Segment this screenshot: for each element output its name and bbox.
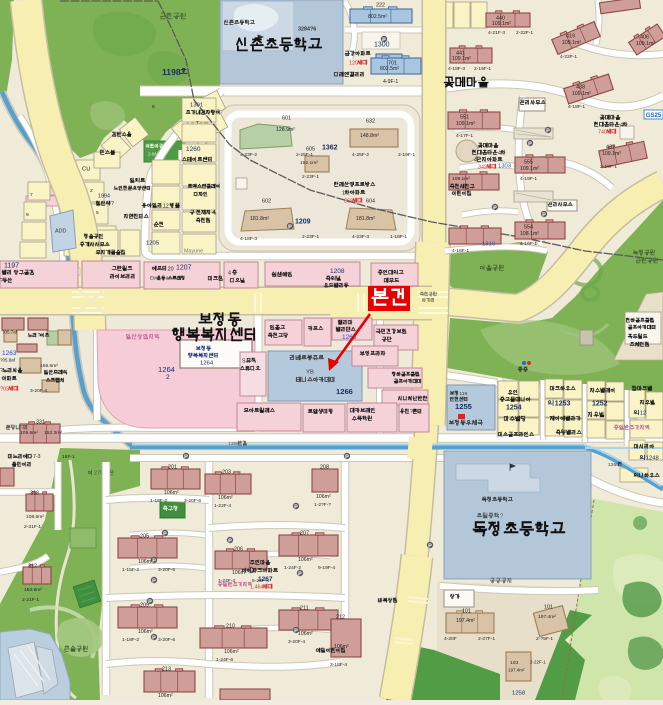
svg-text:?: ? <box>0 278 3 284</box>
svg-text:7: 7 <box>30 192 33 198</box>
svg-text:1-2?F-?: 1-2?F-? <box>314 502 331 508</box>
svg-text:2-21F-1: 2-21F-1 <box>22 597 39 603</box>
svg-text:406: 406 <box>640 34 649 40</box>
svg-text:120: 120 <box>349 60 358 66</box>
svg-text:108.1m²: 108.1m² <box>452 176 470 182</box>
svg-text:181.8m²: 181.8m² <box>250 216 269 222</box>
svg-text:Mayune: Mayune <box>184 248 203 254</box>
svg-text:P: P <box>542 212 546 218</box>
svg-text:109.1m²: 109.1m² <box>452 56 471 62</box>
svg-text:4-18F-3: 4-18F-3 <box>240 236 257 242</box>
svg-text:318: 318 <box>30 490 39 496</box>
svg-text:ADD: ADD <box>55 228 66 234</box>
svg-text:3-20F-6: 3-20F-6 <box>158 567 175 573</box>
svg-text:12: 12 <box>163 203 169 209</box>
svg-text:2: 2 <box>90 188 93 194</box>
svg-text:2-19F-1: 2-19F-1 <box>474 66 491 72</box>
svg-text:109.1m²: 109.1m² <box>636 41 655 47</box>
svg-text:?: ? <box>410 409 413 415</box>
svg-text:1-18F-2: 1-18F-2 <box>150 498 167 504</box>
svg-text:197.4m²: 197.4m² <box>456 618 475 624</box>
svg-text:1255: 1255 <box>455 402 473 411</box>
svg-text:1248: 1248 <box>646 456 660 462</box>
svg-text:438: 438 <box>576 84 585 90</box>
svg-text:554: 554 <box>524 224 533 230</box>
svg-text:109.6m²: 109.6m² <box>20 430 38 436</box>
svg-text:4-17F-1: 4-17F-1 <box>456 133 473 139</box>
svg-text:209: 209 <box>140 602 149 608</box>
svg-text:342: 342 <box>478 164 487 170</box>
svg-text:4-18F-3: 4-18F-3 <box>448 66 465 72</box>
svg-text:213: 213 <box>162 666 171 672</box>
svg-text:2-23F-1: 2-23F-1 <box>302 234 319 240</box>
svg-text:3-20F-6: 3-20F-6 <box>158 637 175 643</box>
svg-text:6: 6 <box>152 104 155 110</box>
svg-text:106m²: 106m² <box>164 490 179 496</box>
svg-text:&: & <box>166 276 169 281</box>
svg-text:210: 210 <box>226 623 235 629</box>
svg-text:1-22F-4: 1-22F-4 <box>214 503 231 509</box>
svg-text:604: 604 <box>366 198 375 204</box>
svg-text:4-19F-1: 4-19F-1 <box>520 176 537 182</box>
svg-text:12: 12 <box>640 411 647 417</box>
svg-text:206: 206 <box>234 546 243 552</box>
svg-text:106m²: 106m² <box>298 631 313 637</box>
svg-text:197.4m²: 197.4m² <box>508 668 525 673</box>
svg-text:?05.7af: ?05.7af <box>2 330 18 335</box>
svg-text:2-22F-1: 2-22F-1 <box>530 660 546 665</box>
svg-text:4: 4 <box>498 150 501 156</box>
svg-text:CU: CU <box>82 167 91 173</box>
svg-text:155.6m²: 155.6m² <box>40 363 58 369</box>
svg-text:4: 4 <box>228 270 231 276</box>
svg-text:P: P <box>528 141 532 147</box>
svg-text:152.8m²: 152.8m² <box>24 587 42 593</box>
svg-text:181.8m²: 181.8m² <box>356 216 375 222</box>
svg-text:1263: 1263 <box>2 350 17 357</box>
svg-text:7: 7 <box>196 120 199 126</box>
svg-text:555: 555 <box>524 159 533 165</box>
svg-text:1253: 1253 <box>555 401 571 408</box>
svg-text:?05.8af: ?05.8af <box>0 358 16 363</box>
svg-text:9: 9 <box>26 212 29 218</box>
svg-text:109.1m²: 109.1m² <box>456 121 475 127</box>
svg-text:5: 5 <box>96 210 99 216</box>
svg-text:4: 4 <box>620 122 623 128</box>
svg-text:1254: 1254 <box>506 405 522 412</box>
svg-text:211: 211 <box>300 605 309 611</box>
svg-text:1-24F-6: 1-24F-6 <box>216 657 233 663</box>
svg-text:601: 601 <box>282 115 291 121</box>
svg-text:106m²: 106m² <box>316 494 331 500</box>
svg-text:P: P <box>152 558 156 564</box>
svg-text:P: P <box>228 538 232 544</box>
svg-text:1362: 1362 <box>322 145 338 152</box>
svg-text:551: 551 <box>460 114 469 120</box>
svg-text:P: P <box>163 531 167 537</box>
svg-text:201: 201 <box>168 464 177 470</box>
svg-text:208: 208 <box>320 464 329 470</box>
svg-text:P: P <box>428 543 432 549</box>
svg-text:605: 605 <box>306 146 315 152</box>
svg-text:1252: 1252 <box>592 401 608 408</box>
svg-text:P: P <box>288 224 292 230</box>
svg-text:103: 103 <box>510 660 518 666</box>
svg-text:106m²: 106m² <box>224 649 239 655</box>
svg-text:P: P <box>184 454 188 460</box>
svg-text:P: P <box>152 578 156 584</box>
svg-text:1310: 1310 <box>482 242 496 248</box>
svg-text:20: 20 <box>168 266 174 272</box>
svg-text:437: 437 <box>606 144 615 150</box>
svg-text:4-21F-3: 4-21F-3 <box>488 30 505 36</box>
svg-text:106m²: 106m² <box>138 629 153 635</box>
svg-text:108.6m²: 108.6m² <box>26 514 44 520</box>
svg-text:2-23F-1: 2-23F-1 <box>302 174 319 180</box>
svg-text:602: 602 <box>262 198 271 204</box>
svg-text:1268: 1268 <box>608 462 619 468</box>
svg-text:1266: 1266 <box>336 387 353 396</box>
svg-text:16F-1: 16F-1 <box>62 454 75 460</box>
svg-text:109.1m²: 109.1m² <box>520 166 539 172</box>
svg-text:1-15F-2: 1-15F-2 <box>122 567 139 573</box>
svg-text:4-25F-2: 4-25F-2 <box>352 152 369 158</box>
svg-text:?: ? <box>38 333 41 339</box>
svg-text:1264: 1264 <box>200 361 214 367</box>
svg-text:802.5m²: 802.5m² <box>380 66 399 72</box>
svg-text:2-27F-1: 2-27F-1 <box>478 636 495 642</box>
svg-text:1300: 1300 <box>374 42 390 49</box>
svg-text:148.8m²: 148.8m² <box>360 133 379 139</box>
svg-text:1994: 1994 <box>98 193 110 199</box>
svg-text:109.1m²: 109.1m² <box>572 91 591 97</box>
svg-text:4-20F: 4-20F <box>444 636 457 642</box>
svg-text:4-18F-1: 4-18F-1 <box>568 104 585 110</box>
svg-text:P: P <box>493 205 497 211</box>
svg-text:109.1m²: 109.1m² <box>492 21 511 27</box>
svg-text:197.4m²: 197.4m² <box>538 614 556 620</box>
svg-text:109.1m²: 109.1m² <box>602 151 621 157</box>
svg-text:331: 331 <box>36 419 45 425</box>
svg-text:P: P <box>294 504 298 510</box>
svg-text:4-23F-3: 4-23F-3 <box>352 234 369 240</box>
svg-text:P: P <box>152 635 156 641</box>
svg-text:4-16F-1: 4-16F-1 <box>452 248 469 254</box>
svg-text:2-22F-1: 2-22F-1 <box>516 30 533 36</box>
svg-text:101: 101 <box>544 604 553 610</box>
svg-text:1-18F-1: 1-18F-1 <box>390 234 407 240</box>
svg-text:1198: 1198 <box>162 67 181 77</box>
svg-text:2: 2 <box>166 374 170 381</box>
svg-text:3-20F-4: 3-20F-4 <box>288 639 305 645</box>
svg-text:9-19F-4: 9-19F-4 <box>318 565 335 571</box>
svg-text:P: P <box>345 454 349 460</box>
svg-text:YB: YB <box>306 370 314 376</box>
svg-text:419: 419 <box>566 33 575 39</box>
svg-text:7-3: 7-3 <box>33 454 41 460</box>
svg-text:207: 207 <box>300 530 309 536</box>
svg-text:205: 205 <box>140 533 149 539</box>
svg-text:1-18F-2: 1-18F-2 <box>122 637 139 643</box>
svg-text:GS25: GS25 <box>646 113 662 119</box>
svg-text:740: 740 <box>598 129 607 135</box>
svg-text:P: P <box>298 571 302 577</box>
svg-text:2-?5F-1: 2-?5F-1 <box>536 636 553 642</box>
svg-text:119: 119 <box>459 391 467 397</box>
svg-text:4-16F-1: 4-16F-1 <box>520 241 537 247</box>
svg-text:P: P <box>249 568 253 574</box>
svg-text:3-20F-4: 3-20F-4 <box>30 388 47 394</box>
svg-text:128.9m²: 128.9m² <box>276 127 295 133</box>
svg-text:3-18F-4: 3-18F-4 <box>330 662 347 668</box>
svg-text:106m²: 106m² <box>158 693 173 699</box>
svg-text:?03: ?03 <box>0 386 9 392</box>
svg-text:152.3m²: 152.3m² <box>44 430 62 436</box>
svg-text:1368: 1368 <box>228 441 239 447</box>
svg-text:1-24F-2: 1-24F-2 <box>284 565 301 571</box>
svg-text:312: 312 <box>28 563 37 569</box>
svg-text:1207: 1207 <box>176 265 192 272</box>
svg-text:222: 222 <box>376 2 385 8</box>
svg-text:632: 632 <box>366 118 375 124</box>
svg-text:106m²: 106m² <box>218 495 233 501</box>
svg-text:101: 101 <box>462 608 471 614</box>
svg-text:1264: 1264 <box>158 365 175 374</box>
svg-text:106m²: 106m² <box>232 570 247 576</box>
svg-text:1205: 1205 <box>146 241 160 247</box>
svg-text:1303: 1303 <box>498 164 512 170</box>
svg-text:2-19F-1: 2-19F-1 <box>398 152 415 158</box>
svg-text:106m²: 106m² <box>298 557 313 563</box>
svg-text:802.5m²: 802.5m² <box>368 14 387 20</box>
svg-text:203: 203 <box>222 469 231 475</box>
svg-text:1260: 1260 <box>186 146 201 153</box>
svg-text:106m²: 106m² <box>138 559 153 565</box>
svg-text:4: 4 <box>474 157 477 163</box>
svg-text:1301: 1301 <box>190 103 203 109</box>
svg-text:2-31F-1: 2-31F-1 <box>24 524 41 530</box>
svg-text:1: 1 <box>342 190 345 196</box>
svg-text:1267: 1267 <box>258 576 273 583</box>
svg-text:212: 212 <box>336 614 345 620</box>
svg-text:1197: 1197 <box>4 263 19 270</box>
svg-text:2-25F-1: 2-25F-1 <box>296 152 313 158</box>
svg-text:2-19F-1: 2-19F-1 <box>600 164 617 170</box>
svg-text:3284?6: 3284?6 <box>298 26 316 32</box>
svg-text:P: P <box>546 128 550 134</box>
svg-text:1209: 1209 <box>295 219 311 226</box>
svg-text:1258: 1258 <box>512 691 526 697</box>
svg-text:4-9F-1: 4-9F-1 <box>383 79 398 85</box>
svg-text:108.1m²: 108.1m² <box>520 231 539 237</box>
svg-text:?: ? <box>111 201 114 207</box>
svg-text:3-20F-6: 3-20F-6 <box>184 498 201 504</box>
svg-text:4-22F-1: 4-22F-1 <box>560 54 577 60</box>
svg-text:1208: 1208 <box>330 268 345 275</box>
svg-text:152.1m²: 152.1m² <box>300 160 318 166</box>
svg-text:109.1m²: 109.1m² <box>562 40 581 46</box>
